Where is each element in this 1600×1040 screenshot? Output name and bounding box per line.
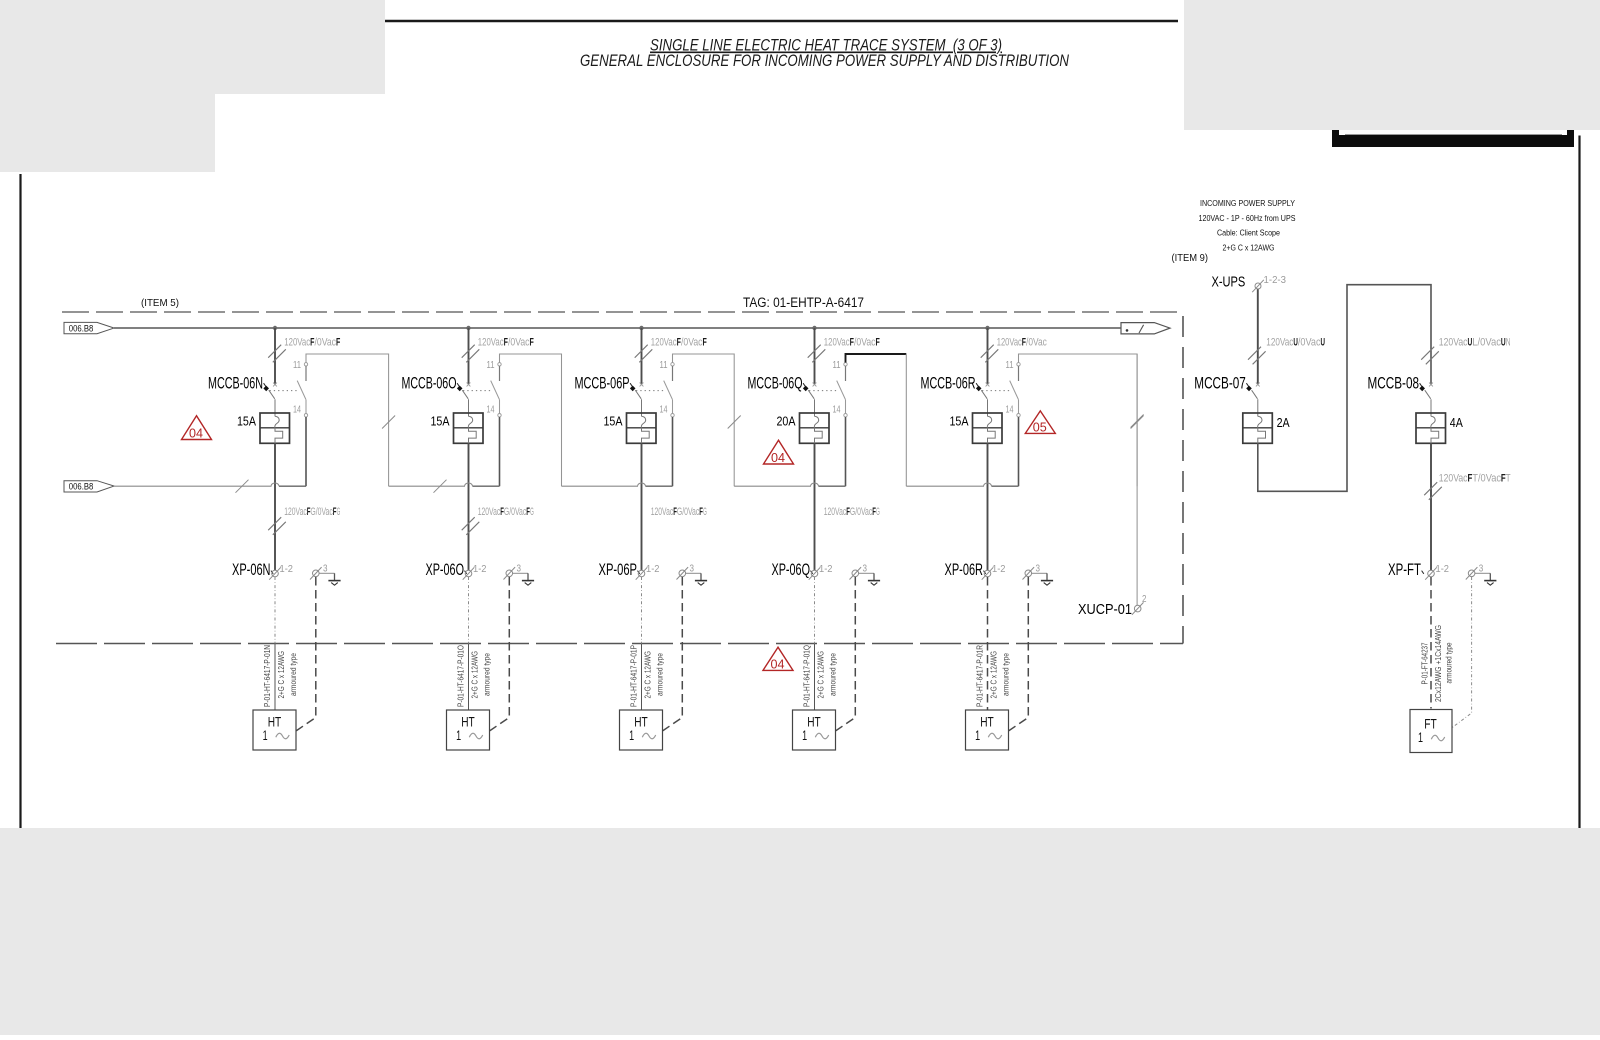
svg-text:HT: HT	[461, 715, 475, 730]
svg-text:G: G	[530, 506, 534, 518]
svg-text:1-2: 1-2	[992, 563, 1006, 575]
svg-text:P-01-HT-6417-P-01P: P-01-HT-6417-P-01P	[629, 645, 638, 707]
svg-text:P-01-HT-6417-P-01R: P-01-HT-6417-P-01R	[975, 645, 984, 707]
svg-text:1: 1	[456, 727, 461, 743]
svg-text:2+G C x 12AWG: 2+G C x 12AWG	[277, 651, 286, 699]
svg-text:04: 04	[189, 426, 203, 441]
svg-text:2+G C x 12AWG: 2+G C x 12AWG	[470, 651, 479, 699]
svg-text:3: 3	[517, 563, 522, 575]
svg-text:F: F	[336, 336, 340, 348]
svg-text:X-UPS: X-UPS	[1212, 275, 1246, 291]
svg-text:armoured type: armoured type	[655, 653, 664, 696]
svg-text:MCCB-06Q: MCCB-06Q	[748, 374, 803, 392]
svg-text:armoured type: armoured type	[289, 653, 298, 696]
svg-text:G/0Vac: G/0Vac	[677, 506, 700, 518]
svg-text:FT: FT	[1424, 717, 1437, 732]
svg-text:120Vac: 120Vac	[1439, 472, 1468, 484]
svg-text:1-2: 1-2	[1436, 563, 1450, 575]
svg-text:/0Vac: /0Vac	[681, 336, 703, 348]
svg-text:P-01-FT-64237: P-01-FT-64237	[1421, 642, 1430, 684]
svg-text:120Vac: 120Vac	[824, 506, 847, 518]
svg-text:120VAC - 1P - 60Hz from UPS: 120VAC - 1P - 60Hz from UPS	[1199, 213, 1296, 223]
svg-text:04: 04	[771, 450, 785, 465]
svg-text:XP-FT: XP-FT	[1388, 561, 1421, 579]
svg-text:15A: 15A	[950, 414, 969, 429]
svg-text:HT: HT	[807, 715, 821, 730]
svg-text:armoured type: armoured type	[828, 653, 837, 696]
svg-text:006.B8: 006.B8	[69, 482, 94, 493]
svg-text:F: F	[703, 336, 707, 348]
svg-text:/0Vac: /0Vac	[315, 336, 337, 348]
svg-text:1-2-3: 1-2-3	[1264, 274, 1287, 286]
svg-text:14: 14	[833, 405, 841, 416]
svg-text:4A: 4A	[1450, 415, 1463, 430]
svg-text:T/0Vac: T/0Vac	[1472, 472, 1501, 484]
svg-text:T: T	[1506, 472, 1511, 484]
svg-text:U: U	[1321, 336, 1326, 348]
svg-text:15A: 15A	[604, 414, 623, 429]
svg-text:14: 14	[660, 405, 668, 416]
svg-text:Cable: Client Scope: Cable: Client Scope	[1217, 227, 1280, 237]
svg-text:120Vac: 120Vac	[284, 506, 307, 518]
svg-text:G: G	[876, 506, 880, 518]
svg-text:120Vac: 120Vac	[478, 506, 501, 518]
svg-text:MCCB-08: MCCB-08	[1368, 374, 1420, 392]
svg-text:05: 05	[1033, 419, 1047, 434]
svg-text:1-2: 1-2	[280, 563, 294, 575]
svg-text:XUCP-01: XUCP-01	[1078, 601, 1132, 618]
svg-text:MCCB-06P: MCCB-06P	[575, 374, 630, 392]
svg-text:F: F	[530, 336, 534, 348]
svg-text:/0Vac: /0Vac	[854, 336, 876, 348]
svg-text:11: 11	[293, 360, 301, 371]
svg-text:G/0Vac: G/0Vac	[310, 506, 333, 518]
svg-text:armoured type: armoured type	[1001, 653, 1010, 696]
svg-text:120Vac: 120Vac	[284, 336, 310, 348]
svg-text:14: 14	[487, 405, 495, 416]
svg-text:1-2: 1-2	[646, 563, 660, 575]
svg-text:MCCB-06R: MCCB-06R	[921, 374, 976, 392]
svg-text:11: 11	[1006, 360, 1014, 371]
svg-text:3: 3	[323, 563, 328, 575]
svg-text:1-2: 1-2	[473, 563, 487, 575]
svg-text:006.B8: 006.B8	[69, 323, 94, 334]
svg-text:120Vac: 120Vac	[824, 336, 850, 348]
svg-text:3: 3	[1479, 563, 1484, 575]
svg-text:G: G	[337, 506, 341, 518]
svg-text:P-01-HT-6417-P-01N: P-01-HT-6417-P-01N	[263, 645, 272, 707]
svg-text:(ITEM 5): (ITEM 5)	[141, 297, 179, 309]
svg-text:1: 1	[1418, 729, 1423, 745]
svg-text:MCCB-06N: MCCB-06N	[208, 374, 263, 392]
svg-text:2: 2	[1142, 593, 1147, 605]
svg-text:armoured type: armoured type	[482, 653, 491, 696]
svg-text:1: 1	[629, 727, 634, 743]
svg-text:N: N	[1506, 336, 1511, 348]
svg-text:20A: 20A	[777, 414, 796, 429]
svg-text:(ITEM 9): (ITEM 9)	[1172, 252, 1209, 264]
svg-text:2+G C x 12AWG: 2+G C x 12AWG	[643, 651, 652, 699]
svg-text:XP-06R: XP-06R	[945, 561, 984, 579]
svg-text:11: 11	[833, 360, 841, 371]
svg-text:G/0Vac: G/0Vac	[504, 506, 527, 518]
svg-text:3: 3	[1036, 563, 1041, 575]
svg-text:/0Vac: /0Vac	[508, 336, 530, 348]
svg-text:MCCB-07: MCCB-07	[1194, 374, 1246, 392]
svg-text:120Vac: 120Vac	[1439, 336, 1468, 348]
svg-text:2+G C x 12AWG: 2+G C x 12AWG	[989, 651, 998, 699]
svg-text:11: 11	[487, 360, 495, 371]
svg-text:P-01-HT-6417-P-01O: P-01-HT-6417-P-01O	[456, 645, 465, 707]
svg-text:P-01-HT-6417-P-01Q: P-01-HT-6417-P-01Q	[802, 645, 811, 707]
svg-text:04: 04	[771, 656, 785, 671]
svg-text:120Vac: 120Vac	[651, 336, 677, 348]
svg-text:120Vac: 120Vac	[651, 506, 674, 518]
svg-text:3: 3	[690, 563, 695, 575]
svg-text:HT: HT	[980, 715, 994, 730]
svg-text:XP-06N: XP-06N	[232, 561, 271, 579]
svg-text:L/0Vac: L/0Vac	[1472, 336, 1501, 348]
svg-text:120Vac: 120Vac	[1266, 336, 1293, 348]
svg-text:MCCB-06O: MCCB-06O	[402, 374, 457, 392]
svg-text:GENERAL ENCLOSURE FOR INCOMING: GENERAL ENCLOSURE FOR INCOMING POWER SUP…	[580, 52, 1069, 70]
svg-text:15A: 15A	[237, 414, 256, 429]
svg-text:XP-06P: XP-06P	[599, 561, 638, 579]
svg-text:120Vac: 120Vac	[478, 336, 504, 348]
svg-text:14: 14	[293, 405, 301, 416]
svg-text:15A: 15A	[431, 414, 450, 429]
svg-text:3: 3	[863, 563, 868, 575]
svg-text:/0Vac: /0Vac	[1026, 336, 1047, 348]
svg-text:2A: 2A	[1277, 415, 1290, 430]
svg-text:/0Vac: /0Vac	[1298, 336, 1321, 348]
svg-text:1-2: 1-2	[819, 563, 833, 575]
svg-text:120Vac: 120Vac	[997, 336, 1022, 348]
svg-text:1: 1	[263, 727, 268, 743]
svg-text:1: 1	[975, 727, 980, 743]
svg-text:INCOMING POWER SUPPLY: INCOMING POWER SUPPLY	[1200, 198, 1295, 208]
svg-text:TAG: 01-EHTP-A-6417: TAG: 01-EHTP-A-6417	[743, 295, 864, 310]
svg-text:1: 1	[802, 727, 807, 743]
svg-text:2+G C x 12AWG: 2+G C x 12AWG	[816, 651, 825, 699]
svg-text:2Cx12AWG +1Cx14AWG: 2Cx12AWG +1Cx14AWG	[1434, 625, 1443, 702]
svg-text:G: G	[703, 506, 707, 518]
svg-text:XP-06O: XP-06O	[426, 561, 465, 579]
svg-text:HT: HT	[634, 715, 648, 730]
svg-text:HT: HT	[268, 715, 282, 730]
svg-text:F: F	[876, 336, 880, 348]
svg-text:XP-06Q: XP-06Q	[772, 561, 811, 579]
svg-text:11: 11	[660, 360, 668, 371]
svg-text:G/0Vac: G/0Vac	[850, 506, 873, 518]
svg-text:2+G C x 12AWG: 2+G C x 12AWG	[1223, 242, 1275, 252]
svg-text:14: 14	[1006, 405, 1014, 416]
svg-text:armoured type: armoured type	[1445, 642, 1454, 683]
